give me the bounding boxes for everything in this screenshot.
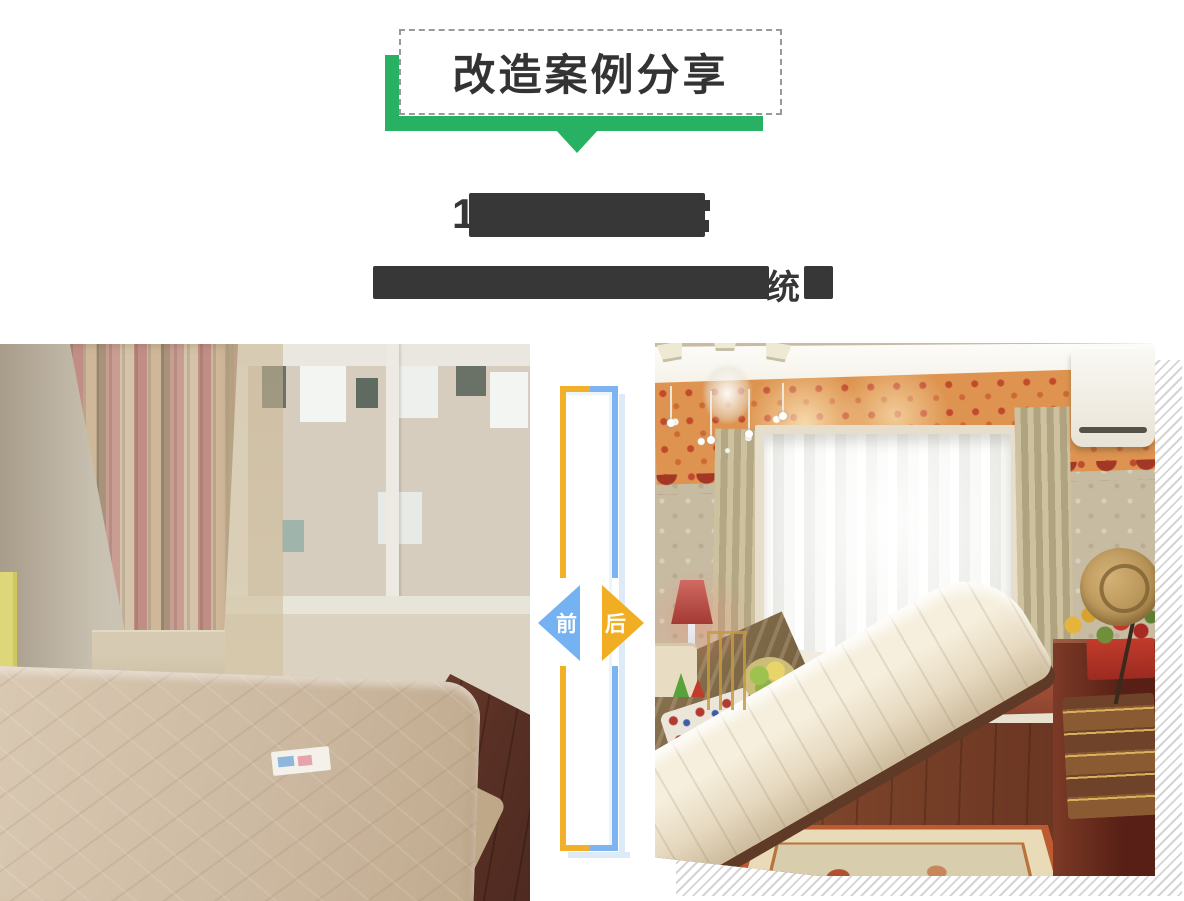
case-subtitle-redacted-glyph [804, 266, 833, 299]
divider-shadow [568, 852, 630, 858]
crystal-drop [782, 383, 784, 413]
divider-frame-right [612, 666, 618, 851]
before-label: 前 [556, 608, 577, 638]
divider-frame-right [612, 386, 618, 578]
sheer-curtain [225, 344, 283, 679]
before-photo [0, 344, 530, 901]
divider-frame-bottom [560, 845, 590, 851]
crystal-drop [670, 386, 672, 420]
banner-title: 改造案例分享 [453, 41, 729, 103]
case-subtitle-fragment: 统 [766, 260, 800, 309]
chandelier-icon [655, 343, 815, 461]
banner-badge: 改造案例分享 [399, 29, 782, 115]
chandelier-shade [657, 343, 686, 363]
after-photo [655, 343, 1155, 876]
banner-pointer-icon [555, 129, 599, 153]
book-stack [1062, 693, 1155, 820]
page: 改造案例分享 1 统 [0, 0, 1184, 901]
paper-chip [277, 756, 294, 768]
paper-chip [297, 755, 312, 766]
case-subtitle-redacted-block [373, 266, 769, 299]
air-conditioner [1071, 351, 1155, 447]
crystal-drop [748, 389, 750, 431]
divider-frame-top [560, 386, 590, 392]
case-title-redacted-block [469, 193, 705, 237]
divider-frame-left [560, 386, 566, 578]
after-label: 后 [605, 608, 626, 638]
divider-frame-bottom [590, 845, 618, 851]
bare-mattress [0, 665, 481, 901]
chandelier-shade [712, 343, 738, 351]
window-mullion [386, 344, 399, 602]
divider-frame-left [560, 666, 566, 851]
gold-candle-stand [707, 631, 747, 710]
before-arrow: 前 [538, 585, 580, 661]
crystal-drop [710, 391, 712, 437]
chandelier-shade [763, 343, 792, 363]
divider-frame-top [590, 386, 618, 392]
